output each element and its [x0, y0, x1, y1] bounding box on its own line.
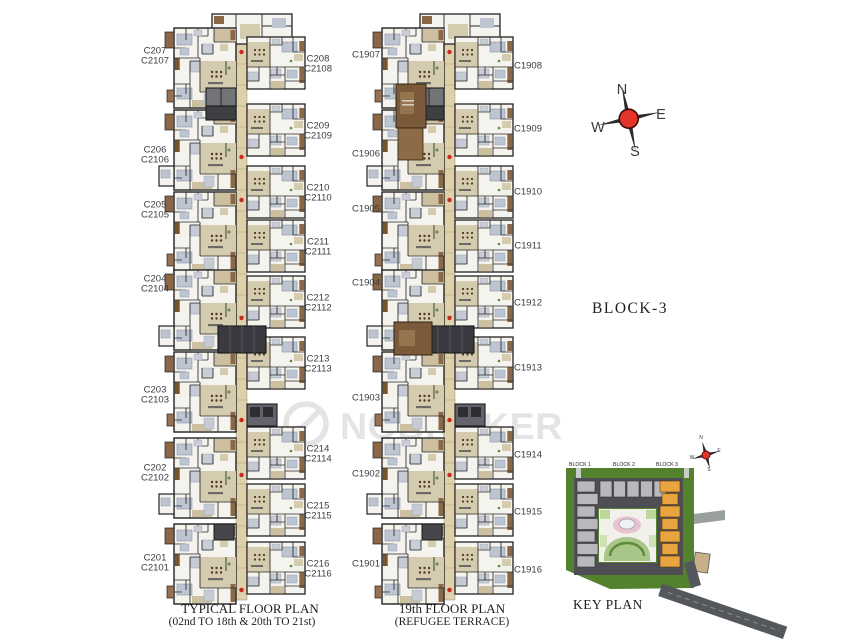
- svg-text:E: E: [656, 107, 666, 123]
- svg-text:C1904: C1904: [352, 278, 380, 289]
- svg-text:C1907: C1907: [352, 50, 380, 61]
- svg-text:C2116: C2116: [304, 569, 331, 580]
- svg-text:KEY PLAN: KEY PLAN: [573, 597, 643, 612]
- svg-text:C1909: C1909: [514, 124, 542, 135]
- svg-text:C2108: C2108: [304, 64, 332, 75]
- svg-text:C2115: C2115: [304, 511, 331, 522]
- svg-text:N: N: [617, 82, 627, 98]
- svg-text:C2112: C2112: [304, 303, 331, 314]
- svg-text:C1914: C1914: [514, 450, 542, 461]
- svg-text:C2107: C2107: [141, 56, 169, 67]
- svg-text:BLOCK 2: BLOCK 2: [613, 462, 635, 468]
- svg-text:C1906: C1906: [352, 149, 380, 160]
- svg-text:C1901: C1901: [352, 559, 380, 570]
- svg-text:C1903: C1903: [352, 393, 380, 404]
- svg-text:C2101: C2101: [141, 563, 169, 574]
- svg-text:C1910: C1910: [514, 187, 542, 198]
- svg-text:C1916: C1916: [514, 565, 542, 576]
- svg-text:C2104: C2104: [141, 284, 169, 295]
- svg-text:C1911: C1911: [514, 241, 541, 252]
- svg-text:C2111: C2111: [305, 247, 332, 258]
- svg-text:C1902: C1902: [352, 469, 380, 480]
- svg-text:C2106: C2106: [141, 155, 169, 166]
- svg-text:(REFUGEE TERRACE): (REFUGEE TERRACE): [395, 616, 510, 628]
- svg-text:C2103: C2103: [141, 395, 169, 406]
- svg-text:C2102: C2102: [141, 473, 169, 484]
- svg-text:S: S: [630, 144, 640, 160]
- svg-text:C2113: C2113: [304, 364, 331, 375]
- svg-text:W: W: [591, 120, 605, 136]
- svg-text:N: N: [699, 435, 703, 441]
- svg-text:C2114: C2114: [304, 454, 331, 465]
- svg-text:C1915: C1915: [514, 507, 542, 518]
- svg-text:C1905: C1905: [352, 204, 380, 215]
- svg-text:19th FLOOR PLAN: 19th FLOOR PLAN: [399, 601, 506, 616]
- svg-text:W: W: [690, 455, 695, 461]
- svg-text:BLOCK 3: BLOCK 3: [656, 462, 678, 468]
- svg-text:C1913: C1913: [514, 363, 542, 374]
- svg-text:C1908: C1908: [514, 61, 542, 72]
- svg-text:C2105: C2105: [141, 210, 169, 221]
- svg-text:(02nd TO 18th & 20th TO 21st): (02nd TO 18th & 20th TO 21st): [169, 616, 316, 628]
- svg-text:BLOCK 1: BLOCK 1: [569, 462, 591, 468]
- svg-text:C1912: C1912: [514, 298, 542, 309]
- svg-text:TYPICAL FLOOR PLAN: TYPICAL FLOOR PLAN: [181, 601, 319, 616]
- svg-text:BLOCK-3: BLOCK-3: [592, 300, 668, 317]
- svg-text:C2110: C2110: [304, 193, 331, 204]
- svg-text:C2109: C2109: [304, 131, 332, 142]
